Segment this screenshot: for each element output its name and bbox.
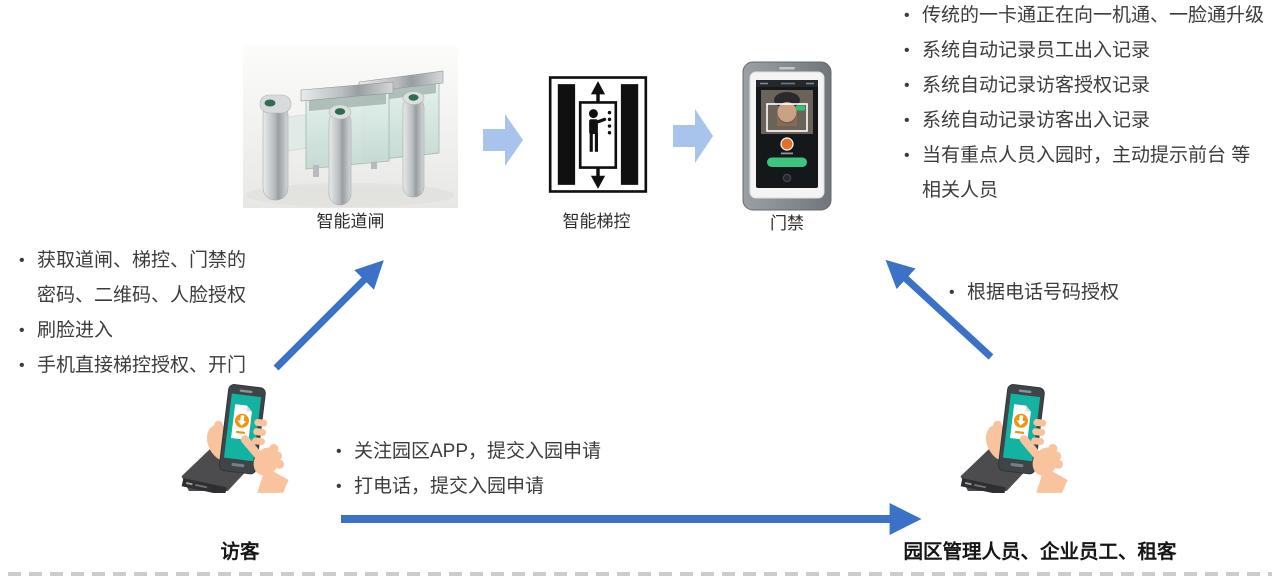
smart-gate-label: 智能道闸 (243, 212, 458, 232)
arrow-elevator-to-door-icon (673, 107, 713, 165)
authorize-notes-list: 根据电话号码授权 (948, 275, 1178, 310)
slide-canvas: 智能道闸 智能梯控 (0, 0, 1280, 576)
arrow-gate-to-elevator-icon (483, 112, 523, 168)
note-item: 手机直接梯控授权、开门 (18, 348, 255, 383)
smart-elevator-label: 智能梯控 (528, 212, 665, 232)
visitor-phone-figure (176, 382, 296, 493)
note-item: 刷脸进入 (18, 313, 255, 348)
smart-gate-image (243, 45, 458, 208)
arrow-visitor-to-gate (276, 276, 368, 368)
smart-elevator-icon (548, 76, 648, 193)
note-item: 根据电话号码授权 (948, 275, 1178, 310)
note-item: 传统的一卡通正在向一机通、一脸通升级 (903, 0, 1267, 33)
note-item: 关注园区APP，提交入园申请 (335, 434, 635, 469)
note-item: 当有重点人员入园时，主动提示前台 等相关人员 (903, 138, 1267, 208)
staff-phone-figure (955, 382, 1075, 493)
door-access-label: 门禁 (735, 214, 839, 234)
note-item: 系统自动记录员工出入记录 (903, 33, 1267, 68)
cutoff-text-row (8, 572, 1272, 576)
note-item: 打电话，提交入园申请 (335, 469, 635, 504)
note-item: 系统自动记录访客授权记录 (903, 68, 1267, 103)
visitor-label: 访客 (170, 535, 310, 564)
note-item: 系统自动记录访客出入记录 (903, 103, 1267, 138)
staff-label: 园区管理人员、企业员工、租客 (870, 535, 1210, 564)
apply-notes-list: 关注园区APP，提交入园申请 打电话，提交入园申请 (335, 434, 635, 504)
door-access-image (735, 60, 839, 215)
note-item: 获取道闸、梯控、门禁的密码、二维码、人脸授权 (18, 243, 255, 313)
visitor-notes-list: 获取道闸、梯控、门禁的密码、二维码、人脸授权 刷脸进入 手机直接梯控授权、开门 (18, 243, 255, 383)
benefit-notes-list: 传统的一卡通正在向一机通、一脸通升级 系统自动记录员工出入记录 系统自动记录访客… (903, 0, 1267, 208)
